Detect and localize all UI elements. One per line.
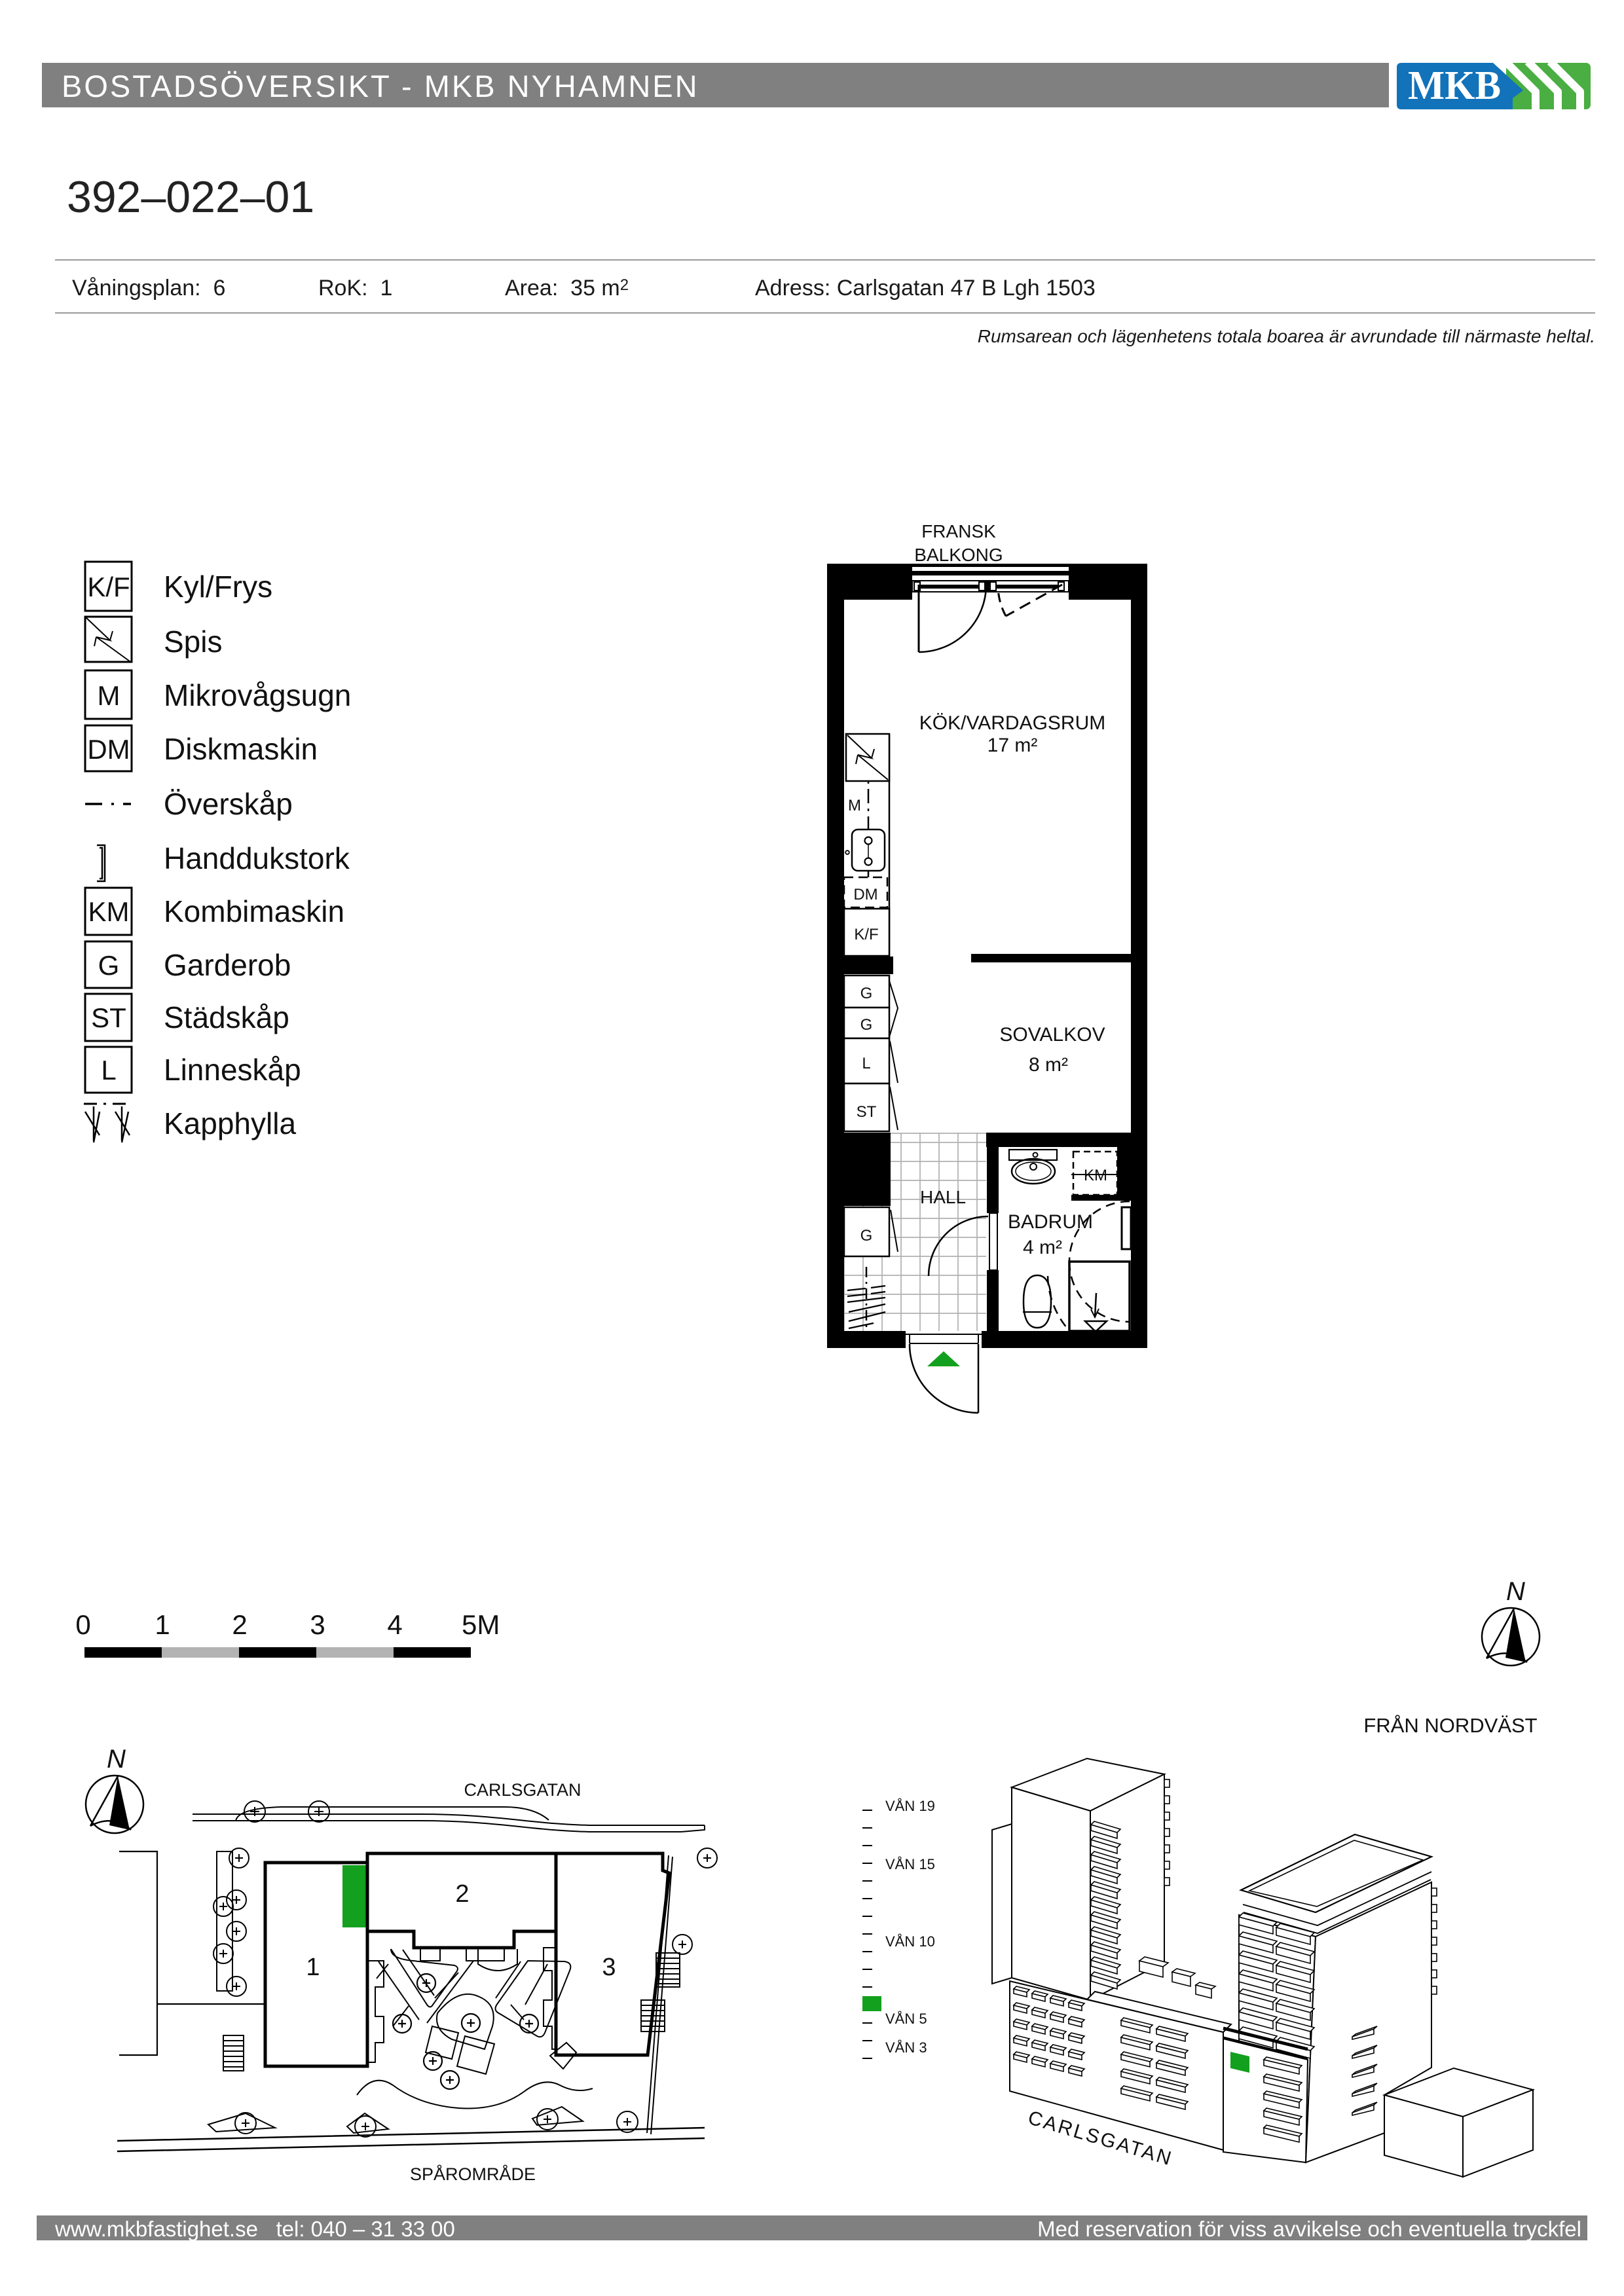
svg-text:KÖK/VARDAGSRUM: KÖK/VARDAGSRUM: [919, 712, 1106, 734]
svg-text:4: 4: [387, 1609, 402, 1640]
svg-text:G: G: [98, 950, 120, 981]
svg-text:Kombimaskin: Kombimaskin: [164, 894, 344, 928]
svg-text:ST: ST: [91, 1002, 126, 1033]
svg-text:VÅN 19: VÅN 19: [885, 1798, 935, 1814]
svg-text:3: 3: [310, 1609, 325, 1640]
svg-text:DM: DM: [87, 734, 130, 765]
svg-text:M: M: [98, 680, 120, 711]
svg-text:1: 1: [306, 1954, 320, 1981]
svg-text:8 m²: 8 m²: [1029, 1054, 1068, 1076]
svg-text:VÅN 5: VÅN 5: [885, 2011, 927, 2027]
svg-text:5M: 5M: [462, 1609, 500, 1640]
svg-text:4 m²: 4 m²: [1023, 1237, 1062, 1258]
svg-text:2: 2: [455, 1880, 469, 1908]
svg-text:Kapphylla: Kapphylla: [164, 1106, 296, 1140]
svg-text:Kyl/Frys: Kyl/Frys: [164, 570, 272, 604]
svg-text:M: M: [848, 797, 861, 814]
svg-text:Överskåp: Överskåp: [164, 787, 293, 821]
svg-text:KM: KM: [88, 896, 130, 927]
svg-text:DM: DM: [853, 886, 877, 903]
svg-text:BALKONG: BALKONG: [914, 545, 1003, 565]
svg-text:ST: ST: [857, 1103, 877, 1121]
svg-text:L: L: [101, 1055, 116, 1085]
svg-text:2: 2: [232, 1609, 247, 1640]
svg-text:0: 0: [75, 1609, 90, 1640]
svg-text:Städskåp: Städskåp: [164, 1000, 289, 1034]
svg-text:SPÅROMRÅDE: SPÅROMRÅDE: [410, 2164, 536, 2184]
svg-text:K/F: K/F: [854, 926, 878, 943]
svg-text:Garderob: Garderob: [164, 948, 291, 982]
svg-text:Linneskåp: Linneskåp: [164, 1053, 301, 1087]
svg-text:SOVALKOV: SOVALKOV: [999, 1024, 1105, 1046]
svg-text:VÅN 15: VÅN 15: [885, 1856, 935, 1872]
svg-text:K/F: K/F: [87, 572, 130, 602]
svg-text:BADRUM: BADRUM: [1008, 1211, 1093, 1233]
svg-text:VÅN 3: VÅN 3: [885, 2039, 927, 2056]
svg-text:Handdukstork: Handdukstork: [164, 841, 350, 875]
svg-text:17 m²: 17 m²: [987, 735, 1038, 756]
svg-text:G: G: [860, 985, 873, 1002]
svg-text:N: N: [1506, 1577, 1525, 1606]
svg-text:CARLSGATAN: CARLSGATAN: [464, 1780, 581, 1800]
svg-text:L: L: [862, 1055, 870, 1072]
svg-text:Diskmaskin: Diskmaskin: [164, 732, 318, 766]
svg-text:KM: KM: [1084, 1167, 1107, 1184]
svg-text:1: 1: [155, 1609, 170, 1640]
svg-text:3: 3: [602, 1954, 616, 1981]
svg-text:VÅN 10: VÅN 10: [885, 1933, 935, 1950]
svg-text:FRÅN NORDVÄST: FRÅN NORDVÄST: [1363, 1714, 1537, 1737]
svg-text:HALL: HALL: [920, 1187, 966, 1207]
svg-text:G: G: [860, 1227, 873, 1245]
svg-text:N: N: [107, 1745, 126, 1774]
svg-text:FRANSK: FRANSK: [921, 521, 996, 541]
svg-text:Spis: Spis: [164, 625, 222, 659]
svg-text:Mikrovågsugn: Mikrovågsugn: [164, 678, 351, 712]
svg-text:G: G: [860, 1016, 873, 1034]
